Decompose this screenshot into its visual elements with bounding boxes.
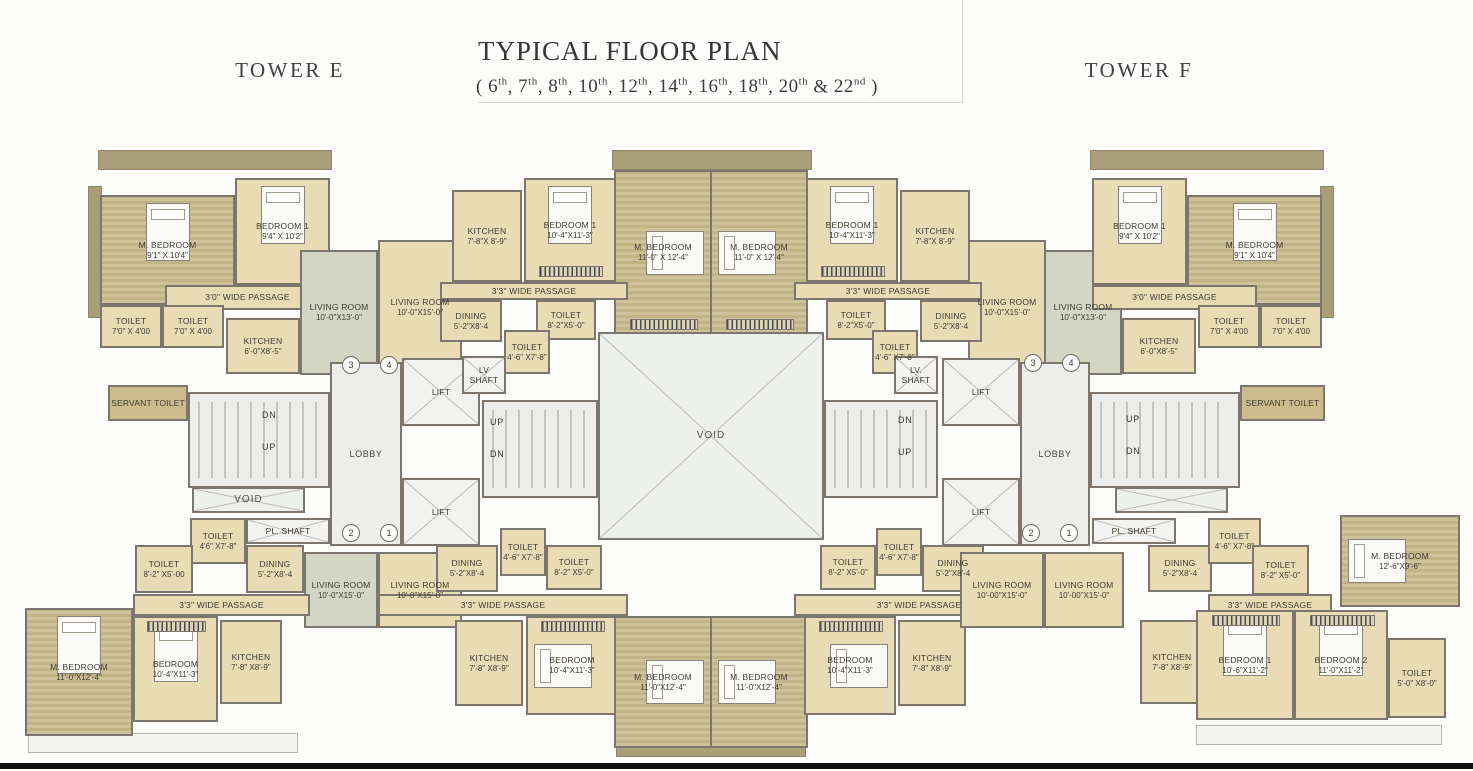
room-dimensions: 10'-4"X11'-3" — [826, 231, 879, 241]
stair-treads-icon — [1100, 402, 1230, 478]
room-dimensions: 10'-6"X11'-2" — [1219, 666, 1272, 676]
room-e3-living: LIVING ROOM10'-0"X15'-0" — [304, 552, 378, 628]
room-label: DINING5'-2"X8'-4 — [936, 558, 970, 579]
room-pl-shaft-left: PL. SHAFT — [246, 518, 330, 544]
room-f4-bedroom2: BEDROOM 211'-0"X11'-2" — [1294, 610, 1388, 720]
room-f2-mbedroom: M. BEDROOM11'-0" X 12'-4" — [710, 170, 808, 335]
room-label: BEDROOM10'-4"X11'-3" — [549, 655, 595, 676]
floor-ordinal: 12th — [618, 76, 648, 97]
room-name: TOILET — [1272, 316, 1310, 326]
room-name: 3'0" WIDE PASSAGE — [1132, 292, 1216, 302]
room-e3-kitchen: KITCHEN7'-8" X8'-9" — [220, 620, 282, 704]
room-label: TOILET4'-6" X7'-8" — [1215, 531, 1254, 552]
room-dimensions: 7'0" X 4'00 — [112, 327, 150, 337]
unit-number-badge: 4 — [380, 356, 398, 374]
room-label: TOILET8'-2" X5'-0" — [554, 557, 593, 578]
room-dimensions: 7'0" X 4'00 — [174, 327, 212, 337]
stair-direction-label: DN — [262, 410, 277, 420]
floor-ordinal: 16th — [698, 76, 728, 97]
room-name: LOBBY — [1038, 449, 1071, 460]
room-f1-toilet-2: TOILET7'0" X 4'00 — [1260, 305, 1322, 348]
room-e4-kitchen: KITCHEN7'-8" X8'-9" — [455, 620, 523, 706]
room-name: VOID — [234, 494, 262, 506]
room-label: LV SHAFT — [464, 365, 504, 385]
room-lv-shaft-left: LV SHAFT — [462, 356, 506, 394]
room-dimensions: 8'-2"X5'-0" — [547, 321, 584, 331]
stair-direction-label: DN — [1126, 446, 1141, 456]
room-deck-top-right — [1090, 150, 1324, 170]
room-name: KITCHEN — [467, 226, 506, 236]
room-name: KITCHEN — [1152, 652, 1191, 662]
room-e1-toilet-1: TOILET7'0" X 4'00 — [100, 305, 162, 348]
room-label: TOILET4'-6" X7'-8" — [875, 342, 914, 363]
room-name: TOILET — [879, 542, 918, 552]
room-dimensions: 5'-2"X8'-4 — [934, 322, 968, 332]
room-dimensions: 10'-4"X11'-3" — [549, 666, 595, 676]
room-label: KITCHEN7'-8"X 8'-9" — [467, 226, 506, 247]
room-lift-right-2: LIFT — [942, 478, 1020, 546]
room-stair-mid-right — [824, 400, 938, 498]
unit-number-badge: 3 — [1024, 354, 1042, 372]
room-label: KITCHEN7'-8" X8'-9" — [1152, 652, 1191, 673]
room-dimensions: 4'-6" X7'-8" — [875, 353, 914, 363]
unit-number-badge: 2 — [342, 524, 360, 542]
stair-treads-icon — [492, 410, 588, 488]
room-dimensions: 6'-0"X8'-5" — [1140, 347, 1179, 357]
room-label: TOILET8'-2" X5'-0" — [828, 557, 867, 578]
room-dimensions: 11'-0"X12'-4" — [50, 673, 108, 683]
room-label: DINING5'-2"X8'-4 — [450, 558, 484, 579]
room-name: 3'3" WIDE PASSAGE — [461, 600, 545, 610]
room-name: 3'3" WIDE PASSAGE — [846, 286, 930, 296]
room-name: DINING — [1163, 558, 1197, 568]
stair-direction-label: UP — [490, 417, 504, 427]
room-name: TOILET — [174, 316, 212, 326]
room-dimensions: 5'-0" X8'-0" — [1397, 679, 1436, 689]
room-name: LOBBY — [349, 449, 382, 460]
room-dimensions: 6'-0"X8'-5" — [244, 347, 283, 357]
room-dimensions: 11'-0"X12'-4" — [634, 683, 692, 693]
room-name: BEDROOM 2 — [1315, 655, 1368, 665]
room-deck-top-center — [612, 150, 812, 170]
room-dimensions: 9'1" X 10'4" — [139, 251, 197, 261]
room-label: KITCHEN7'-8" X8'-9" — [469, 653, 508, 674]
room-label: SERVANT TOILET — [111, 398, 185, 408]
room-label: TOILET8'-2"X5'-0" — [837, 310, 874, 331]
room-name: DINING — [450, 558, 484, 568]
room-label: TOILET5'-0" X8'-0" — [1397, 668, 1436, 689]
room-label: LIVING ROOM10'-0"X13'-0" — [1054, 302, 1113, 323]
room-stair-left — [188, 392, 330, 488]
cross-hatch-icon — [1117, 489, 1226, 511]
room-f4-mbedroom: M. BEDROOM12'-6"X9'-6" — [1340, 515, 1460, 607]
room-label: M. BEDROOM12'-6"X9'-6" — [1371, 551, 1429, 572]
room-f3-bedroom: BEDROOM10'-4"X11'-3" — [804, 616, 896, 715]
room-dimensions: 8'-2" X5'-0" — [554, 568, 593, 578]
room-dimensions: 10'-00"X15'-0" — [1055, 591, 1114, 601]
room-name: DINING — [936, 558, 970, 568]
room-dimensions: 9'1" X 10'4" — [1226, 251, 1284, 261]
room-void-center: VOID — [598, 332, 824, 540]
room-label: M. BEDROOM9'1" X 10'4" — [139, 240, 197, 261]
room-name: DINING — [454, 311, 488, 321]
room-label: 3'3" WIDE PASSAGE — [1228, 600, 1312, 610]
room-label: KITCHEN7'-8" X8'-9" — [231, 652, 270, 673]
room-dimensions: 10'-4"X11'-3" — [827, 666, 873, 676]
room-label: 3'3" WIDE PASSAGE — [877, 600, 961, 610]
room-label: TOILET7'0" X 4'00 — [174, 316, 212, 337]
room-name: BEDROOM 1 — [1113, 221, 1166, 231]
room-label: KITCHEN7'-8"X 8'-9" — [915, 226, 954, 247]
wardrobe-icon — [541, 621, 605, 632]
room-e4-toilet-82: TOILET8'-2" X5'-0" — [546, 545, 602, 590]
room-name: M. BEDROOM — [634, 672, 692, 682]
wardrobe-icon — [1310, 615, 1375, 626]
room-lift-left-2: LIFT — [402, 478, 480, 546]
room-deck-bottom-left — [28, 733, 298, 753]
room-dimensions: 9'4" X 10'2" — [256, 232, 309, 242]
room-name: LIVING ROOM — [312, 580, 371, 590]
room-label: BEDROOM10'-4"X11'-3" — [153, 659, 199, 680]
room-label: DINING5'-2"X8'-4 — [1163, 558, 1197, 579]
room-e1-kitchen: KITCHEN6'-0"X8'-5" — [226, 318, 300, 374]
room-label: DINING5'-2"X8'-4 — [454, 311, 488, 332]
room-name: TOILET — [507, 342, 546, 352]
floors-line: ( 6th, 7th, 8th, 10th, 12th, 14th, 16th,… — [476, 76, 878, 98]
room-name: LIFT — [972, 507, 990, 517]
room-label: TOILET8'-2" X5'-0" — [1261, 560, 1300, 581]
room-label: 3'3" WIDE PASSAGE — [492, 286, 576, 296]
room-dimensions: 10'-0"X15'-0" — [391, 308, 450, 318]
room-e3-toilet-82: TOILET8'-2" X5'-00 — [135, 545, 193, 593]
room-dimensions: 10'-0"X15'-0" — [978, 308, 1037, 318]
tower-f-label: TOWER F — [1049, 58, 1229, 83]
room-name: M. BEDROOM — [730, 672, 788, 682]
room-deck-top-left — [98, 150, 332, 170]
room-label: M. BEDROOM9'1" X 10'4" — [1226, 240, 1284, 261]
room-dimensions: 8'-2"X5'-0" — [837, 321, 874, 331]
room-label: TOILET8'-2"X5'-0" — [547, 310, 584, 331]
room-name: TOILET — [200, 531, 237, 541]
room-label: VOID — [234, 494, 262, 506]
room-name: TOILET — [547, 310, 584, 320]
room-f3-toilet-46: TOILET4'-6" X7'-8" — [876, 528, 922, 576]
room-dimensions: 10'-0"X13'-0" — [310, 313, 369, 323]
room-e1-toilet-2: TOILET7'0" X 4'00 — [162, 305, 224, 348]
room-name: LIFT — [432, 507, 450, 517]
room-servant-toilet-left: SERVANT TOILET — [108, 385, 188, 421]
room-e4-toilet-46: TOILET4'-6" X7'-8" — [500, 528, 546, 576]
room-name: TOILET — [1397, 668, 1436, 678]
room-dimensions: 7'-8"X 8'-9" — [467, 237, 506, 247]
room-name: 3'3" WIDE PASSAGE — [1228, 600, 1312, 610]
room-label: BEDROOM 110'-4"X11'-3" — [826, 220, 879, 241]
room-label: TOILET4'6" X7'-8" — [200, 531, 237, 552]
room-e2-bedroom1: BEDROOM 110'-4"X11'-3" — [524, 178, 616, 282]
room-dimensions: 5'-2"X8'-4 — [258, 570, 292, 580]
room-name: 3'3" WIDE PASSAGE — [179, 600, 263, 610]
room-label: TOILET4'-6" X7'-8" — [507, 342, 546, 363]
room-label: TOILET7'0" X 4'00 — [112, 316, 150, 337]
room-label: M. BEDROOM11'-0"X12'-4" — [730, 672, 788, 693]
stair-direction-label: UP — [898, 447, 912, 457]
room-e3-dining: DINING5'-2"X8'-4 — [246, 545, 304, 593]
room-label: LIFT — [432, 387, 450, 397]
room-dimensions: 4'6" X7'-8" — [200, 542, 237, 552]
room-f3-living-1: LIVING ROOM10'-00"X15'-0" — [960, 552, 1044, 628]
room-label: BEDROOM 19'4" X 10'2" — [256, 221, 309, 242]
room-dimensions: 7'-8"X 8'-9" — [915, 237, 954, 247]
room-label: BEDROOM10'-4"X11'-3" — [827, 655, 873, 676]
room-label: LOBBY — [1038, 449, 1071, 460]
stair-direction-label: DN — [490, 449, 505, 459]
room-name: TOILET — [875, 342, 914, 352]
room-dimensions: 10'-4"X11'-3" — [544, 231, 597, 241]
room-label: TOILET7'0" X 4'00 — [1272, 316, 1310, 337]
wardrobe-icon — [726, 319, 794, 330]
room-f2-bedroom1: BEDROOM 110'-4"X11'-3" — [806, 178, 898, 282]
room-dimensions: 8'-2" X5'-00 — [143, 570, 184, 580]
room-name: KITCHEN — [915, 226, 954, 236]
stair-direction-label: UP — [262, 442, 276, 452]
wardrobe-icon — [1212, 615, 1280, 626]
room-dimensions: 11'-0" X 12'-4" — [634, 253, 692, 263]
room-name: M. BEDROOM — [1371, 551, 1429, 561]
unit-number-badge: 3 — [342, 356, 360, 374]
room-name: M. BEDROOM — [730, 242, 788, 252]
room-f4-toilet-50: TOILET5'-0" X8'-0" — [1388, 638, 1446, 718]
room-name: LIFT — [432, 387, 450, 397]
room-name: LIVING ROOM — [391, 297, 450, 307]
room-void-right — [1115, 487, 1228, 513]
header-divider-horizontal — [478, 102, 963, 103]
stair-treads-icon — [834, 410, 928, 488]
room-dimensions: 10'-00"X15'-0" — [973, 591, 1032, 601]
room-name: BEDROOM 1 — [826, 220, 879, 230]
room-name: BEDROOM 1 — [256, 221, 309, 231]
room-f4-kitchen: KITCHEN7'-8" X8'-9" — [1140, 620, 1204, 704]
room-label: KITCHEN7'-8" X8'-9" — [912, 653, 951, 674]
room-dimensions: 10'-0"X13'-0" — [1054, 313, 1113, 323]
room-name: TOILET — [112, 316, 150, 326]
room-label: SERVANT TOILET — [1246, 398, 1320, 408]
room-void-left: VOID — [192, 487, 305, 513]
room-e4-mbedroom: M. BEDROOM11'-0"X12'-4" — [614, 616, 712, 748]
room-label: 3'0" WIDE PASSAGE — [205, 292, 289, 302]
unit-number-badge: 4 — [1062, 354, 1080, 372]
room-dimensions: 7'0" X 4'00 — [1272, 327, 1310, 337]
room-f4-dining: DINING5'-2"X8'-4 — [1148, 545, 1212, 592]
room-f3-mbedroom: M. BEDROOM11'-0"X12'-4" — [710, 616, 808, 748]
room-label: PL. SHAFT — [266, 526, 311, 536]
wardrobe-icon — [539, 266, 603, 277]
room-dimensions: 7'-8" X8'-9" — [469, 664, 508, 674]
room-lobby-right: LOBBY — [1020, 362, 1090, 546]
room-name: M. BEDROOM — [634, 242, 692, 252]
room-name: TOILET — [837, 310, 874, 320]
tower-e-label: TOWER E — [195, 58, 385, 83]
wardrobe-icon — [147, 621, 206, 632]
room-name: PL. SHAFT — [266, 526, 311, 536]
room-dimensions: 5'-2"X8'-4 — [454, 322, 488, 332]
room-label: 3'3" WIDE PASSAGE — [179, 600, 263, 610]
room-name: BEDROOM 1 — [544, 220, 597, 230]
room-dimensions: 10'-0"X15'-0" — [391, 591, 450, 601]
room-name: M. BEDROOM — [139, 240, 197, 250]
room-label: LIFT — [432, 507, 450, 517]
room-f3-kitchen: KITCHEN7'-8" X8'-9" — [898, 620, 966, 706]
room-label: LIVING ROOM10'-0"X15'-0" — [391, 580, 450, 601]
room-label: LIVING ROOM10'-00"X15'-0" — [973, 580, 1032, 601]
room-dimensions: 7'-8" X8'-9" — [1152, 663, 1191, 673]
room-deck-right — [1320, 186, 1334, 318]
room-label: LOBBY — [349, 449, 382, 460]
room-f2-kitchen: KITCHEN7'-8"X 8'-9" — [900, 190, 970, 282]
room-f1-toilet-1: TOILET7'0" X 4'00 — [1198, 305, 1260, 348]
room-name: BEDROOM 1 — [1219, 655, 1272, 665]
room-name: VOID — [697, 430, 725, 442]
room-f1-kitchen: KITCHEN6'-0"X8'-5" — [1122, 318, 1196, 374]
stair-treads-icon — [198, 402, 320, 478]
room-label: DINING5'-2"X8'-4 — [258, 559, 292, 580]
room-name: KITCHEN — [469, 653, 508, 663]
room-label: LIVING ROOM10'-0"X15'-0" — [978, 297, 1037, 318]
room-dimensions: 5'-2"X8'-4 — [1163, 569, 1197, 579]
room-name: TOILET — [554, 557, 593, 567]
room-servant-toilet-right: SERVANT TOILET — [1240, 385, 1325, 421]
floor-ordinal: 22nd — [834, 76, 866, 97]
room-dimensions: 5'-2"X8'-4 — [936, 569, 970, 579]
room-name: KITCHEN — [231, 652, 270, 662]
room-e3-toilet-46: TOILET4'6" X7'-8" — [190, 518, 246, 564]
room-f4-bedroom1: BEDROOM 110'-6"X11'-2" — [1196, 610, 1294, 720]
room-label: BEDROOM 19'4" X 10'2" — [1113, 221, 1166, 242]
room-name: LIVING ROOM — [1055, 580, 1114, 590]
room-dimensions: 11'-0"X11'-2" — [1315, 666, 1368, 676]
floor-plan-canvas: M. BEDROOM9'1" X 10'4"BEDROOM 19'4" X 10… — [0, 0, 1473, 771]
room-label: PL. SHAFT — [1112, 526, 1157, 536]
unit-number-badge: 1 — [1060, 524, 1078, 542]
room-label: VOID — [697, 430, 725, 442]
room-dimensions: 9'4" X 10'2" — [1113, 232, 1166, 242]
room-label: M. BEDROOM11'-0"X12'-4" — [50, 662, 108, 683]
room-e2-toilet-46: TOILET4'-6" X7'-8" — [504, 330, 550, 374]
room-label: LIFT — [972, 387, 990, 397]
room-dimensions: 11'-0" X 12'-4" — [730, 253, 788, 263]
room-f2-dining: DINING5'-2"X8'-4 — [920, 300, 982, 342]
room-e3-passage: 3'3" WIDE PASSAGE — [133, 594, 310, 616]
room-label: BEDROOM 110'-6"X11'-2" — [1219, 655, 1272, 676]
room-name: LV SHAFT — [464, 365, 504, 385]
room-f4-toilet-82: TOILET8'-2" X5'-0" — [1252, 545, 1309, 595]
unit-number-badge: 1 — [380, 524, 398, 542]
room-label: LV. SHAFT — [896, 365, 936, 385]
room-name: TOILET — [828, 557, 867, 567]
floor-ordinal: 20th — [779, 76, 809, 97]
room-name: 3'0" WIDE PASSAGE — [205, 292, 289, 302]
room-name: DINING — [934, 311, 968, 321]
room-label: LIVING ROOM10'-0"X15'-0" — [312, 580, 371, 601]
room-name: TOILET — [1215, 531, 1254, 541]
room-label: LIFT — [972, 507, 990, 517]
room-label: LIVING ROOM10'-00"X15'-0" — [1055, 580, 1114, 601]
room-dimensions: 8'-2" X5'-0" — [1261, 571, 1300, 581]
floor-ordinal: 6th — [488, 76, 508, 97]
room-name: TOILET — [1261, 560, 1300, 570]
room-label: BEDROOM 211'-0"X11'-2" — [1315, 655, 1368, 676]
room-name: PL. SHAFT — [1112, 526, 1157, 536]
room-label: DINING5'-2"X8'-4 — [934, 311, 968, 332]
room-dimensions: 11'-0"X12'-4" — [730, 683, 788, 693]
floor-ordinal: 8th — [548, 76, 568, 97]
room-f3-toilet-82: TOILET8'-2" X5'-0" — [820, 545, 876, 590]
room-name: SERVANT TOILET — [1246, 398, 1320, 408]
room-deck-bottom-right — [1196, 725, 1442, 745]
room-dimensions: 4'-6" X7'-8" — [1215, 542, 1254, 552]
room-label: TOILET4'-6" X7'-8" — [503, 542, 542, 563]
room-name: TOILET — [1210, 316, 1248, 326]
room-lobby-left: LOBBY — [330, 362, 402, 546]
room-label: LIVING ROOM10'-0"X13'-0" — [310, 302, 369, 323]
room-name: LIFT — [972, 387, 990, 397]
room-dimensions: 5'-2"X8'-4 — [450, 569, 484, 579]
room-stair-right — [1090, 392, 1240, 488]
room-e3-bedroom: BEDROOM10'-4"X11'-3" — [133, 616, 218, 722]
room-e1-living: LIVING ROOM10'-0"X13'-0" — [300, 250, 378, 375]
room-name: 3'3" WIDE PASSAGE — [492, 286, 576, 296]
room-label: M. BEDROOM11'-0" X 12'-4" — [634, 242, 692, 263]
room-pl-shaft-right: PL. SHAFT — [1092, 518, 1176, 544]
stair-direction-label: DN — [898, 415, 913, 425]
stair-direction-label: UP — [1126, 414, 1140, 424]
room-label: KITCHEN6'-0"X8'-5" — [244, 336, 283, 357]
room-dimensions: 7'-8" X8'-9" — [231, 663, 270, 673]
room-e2-kitchen: KITCHEN7'-8"X 8'-9" — [452, 190, 522, 282]
room-name: BEDROOM — [153, 659, 199, 669]
room-name: LIVING ROOM — [1054, 302, 1113, 312]
room-e2-living: LIVING ROOM10'-0"X15'-0" — [378, 240, 462, 375]
room-f2-passage: 3'3" WIDE PASSAGE — [794, 282, 982, 300]
page-title: TYPICAL FLOOR PLAN — [478, 36, 782, 67]
room-dimensions: 4'-6" X7'-8" — [503, 553, 542, 563]
room-name: TOILET — [503, 542, 542, 552]
room-label: TOILET7'0" X 4'00 — [1210, 316, 1248, 337]
room-label: KITCHEN6'-0"X8'-5" — [1140, 336, 1179, 357]
room-e3-mbedroom: M. BEDROOM11'-0"X12'-4" — [25, 608, 133, 736]
room-name: KITCHEN — [1140, 336, 1179, 346]
room-dimensions: 4'-6" X7'-8" — [879, 553, 918, 563]
header-divider-vertical — [962, 0, 963, 102]
room-label: LIVING ROOM10'-0"X15'-0" — [391, 297, 450, 318]
room-label: 3'3" WIDE PASSAGE — [846, 286, 930, 296]
room-name: TOILET — [143, 559, 184, 569]
room-name: LIVING ROOM — [391, 580, 450, 590]
room-label: M. BEDROOM11'-0"X12'-4" — [634, 672, 692, 693]
room-dimensions: 7'0" X 4'00 — [1210, 327, 1248, 337]
room-dimensions: 10'-0"X15'-0" — [312, 591, 371, 601]
room-dimensions: 12'-6"X9'-6" — [1371, 562, 1429, 572]
room-name: KITCHEN — [244, 336, 283, 346]
wardrobe-icon — [630, 319, 698, 330]
room-f1-bedroom1: BEDROOM 19'4" X 10'2" — [1092, 178, 1187, 285]
room-name: LIVING ROOM — [978, 297, 1037, 307]
room-dimensions: 4'-6" X7'-8" — [507, 353, 546, 363]
room-e4-bedroom: BEDROOM10'-4"X11'-3" — [526, 616, 618, 715]
unit-number-badge: 2 — [1022, 524, 1040, 542]
wardrobe-icon — [819, 621, 883, 632]
room-label: 3'0" WIDE PASSAGE — [1132, 292, 1216, 302]
room-name: SERVANT TOILET — [111, 398, 185, 408]
